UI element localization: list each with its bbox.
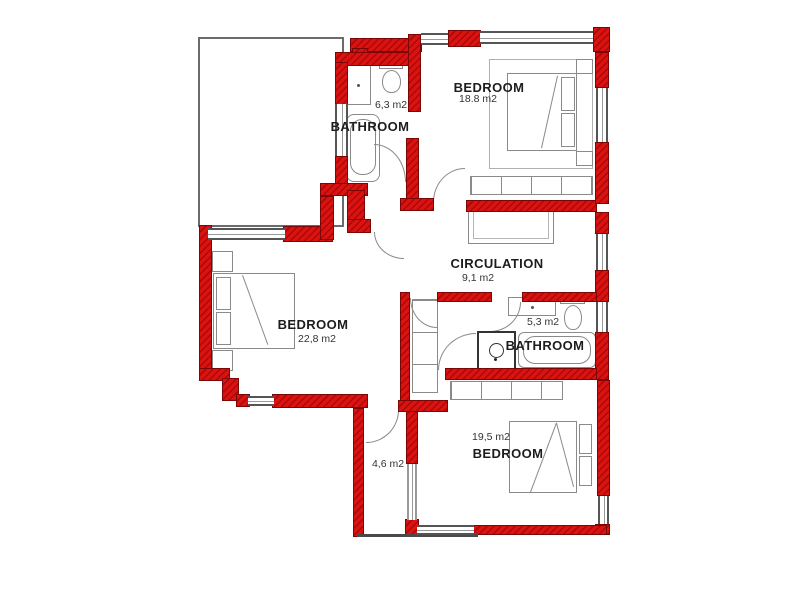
wall-segment [473,525,607,535]
toilet-bowl [382,70,401,93]
wall-segment [398,400,448,412]
wall-segment [466,200,597,212]
wall-segment [595,332,609,380]
wardrobe [450,381,563,400]
pillow [216,312,231,345]
wall-segment [353,408,364,537]
pillow [216,277,231,310]
wall-segment [595,142,609,204]
door-swing [490,302,521,332]
room-label-bathroom-mid: BATHROOM [506,338,585,353]
pillow [579,456,592,486]
wall-segment [335,62,348,106]
window [598,496,609,524]
room-area-bedroom-bottom: 19,5 m2 [472,431,510,443]
pillow [561,113,575,147]
pillow [579,424,592,454]
wall-segment [445,368,597,380]
floor-plan: 6,3 m2 BATHROOM BEDROOM 18.8 m2 CIRCULAT… [0,0,800,600]
toilet-bowl [564,305,582,330]
window [596,88,608,142]
wall-segment [597,380,610,496]
wall-segment [400,198,434,211]
door-swing [366,410,399,443]
door-swing [433,168,465,202]
sink [346,65,371,105]
wardrobe [470,176,593,195]
nightstand [212,251,233,272]
nightstand [576,59,593,74]
wall-segment [272,394,368,408]
room-area-hall: 4,6 m2 [372,458,404,470]
room-label-bedroom-bottom: BEDROOM [473,446,544,461]
wall-segment [437,292,492,302]
wall-segment [347,219,371,233]
sink-drain-dot [531,306,534,309]
wall-segment [522,292,597,302]
wall-opening [407,464,417,520]
sink-drain-dot [357,84,360,87]
room-label-circulation: CIRCULATION [451,256,544,271]
door-swing [374,144,406,182]
door-swing [374,232,404,259]
window [248,396,274,406]
shower-drain-dot [494,358,497,361]
wall-segment [448,30,481,47]
window [208,228,285,240]
window [480,31,593,44]
room-area-bedroom-top: 18.8 m2 [459,93,497,105]
wall-segment [199,225,212,375]
nightstand [576,151,593,166]
shower-head-icon [489,343,504,358]
door-swing [438,333,476,370]
wall-segment [408,34,421,112]
wall-segment [320,196,334,240]
room-area-bedroom-left: 22,8 m2 [298,333,336,345]
room-area-bathroom-mid: 5,3 m2 [527,316,559,328]
room-label-bathroom-top: BATHROOM [331,119,410,134]
wall-segment [595,212,609,234]
window [596,302,608,332]
pillow [561,77,575,111]
window [417,525,474,535]
wall-segment [595,52,609,88]
wall-segment [595,270,609,302]
wall-segment [593,27,610,52]
room-label-bedroom-left: BEDROOM [278,317,349,332]
window [596,234,608,270]
room-area-bathroom-top: 6,3 m2 [375,99,407,111]
wall-segment [400,292,410,404]
room-area-circulation: 9,1 m2 [462,272,494,284]
window [421,33,448,45]
wall-segment [406,138,419,200]
